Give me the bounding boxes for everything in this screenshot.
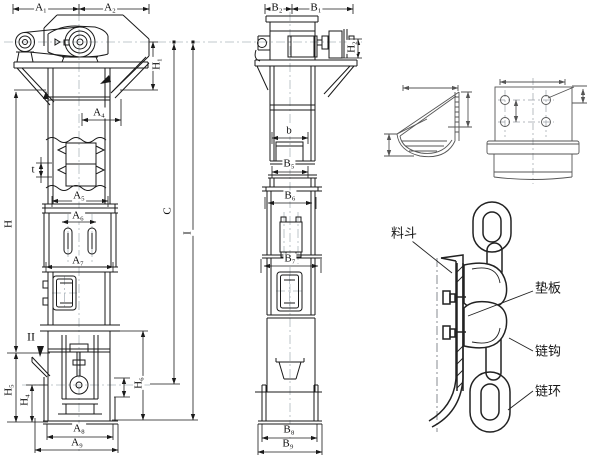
dim-label-t: t xyxy=(30,165,35,176)
dim-label-b6: B₆ xyxy=(283,191,296,202)
bucket-detail-linework xyxy=(384,78,587,184)
dim-label-h6: H₆ xyxy=(134,376,145,390)
side-view-linework xyxy=(255,16,357,424)
chain-detail-pad-plate-label: 垫板 xyxy=(534,278,562,297)
dim-label-c: C xyxy=(163,206,174,215)
dim-label-b9: B₉ xyxy=(281,439,294,450)
dim-label-b2: B₂ xyxy=(270,3,283,14)
dim-label-b1: B₁ xyxy=(309,3,322,14)
dim-label-a7: A₇ xyxy=(71,256,85,267)
dim-label-a2: A₂ xyxy=(103,3,117,14)
chain-detail-chain-hook-label: 链钩 xyxy=(534,341,562,360)
dim-label-h1: H₁ xyxy=(152,57,163,71)
dim-label-h5: H₅ xyxy=(4,383,15,397)
dim-label-a4: A₄ xyxy=(92,108,106,119)
dim-label-b: b xyxy=(285,126,293,137)
section-mark-label: II xyxy=(26,330,36,345)
dim-label-i: I xyxy=(183,230,194,236)
dim-label-a1: A₁ xyxy=(34,3,48,14)
chain-detail-chain-link-label: 链环 xyxy=(534,381,562,400)
dim-label-h4: H₄ xyxy=(20,393,31,407)
dim-label-h2: H₂ xyxy=(347,40,358,54)
drawing-canvas xyxy=(0,0,600,456)
dim-label-a9: A₉ xyxy=(70,438,84,449)
chain-detail-linework xyxy=(412,202,533,432)
front-view-dimensions xyxy=(7,4,198,453)
section-cut-arrow-boot xyxy=(37,346,44,357)
dim-label-a8: A₈ xyxy=(72,424,86,435)
dim-label-h: H xyxy=(4,219,15,229)
dim-label-a5: A₅ xyxy=(72,191,86,202)
chain-detail-bucket-label: 料斗 xyxy=(390,223,418,242)
dim-label-b7: B₇ xyxy=(283,254,296,265)
elevator-drawing: A₁ A₂ H₁ A₄ t A₅ A₆ A₇ II H H₅ H₄ H₆ A₈ … xyxy=(0,0,600,456)
dim-label-b5: B₅ xyxy=(282,159,295,170)
dim-label-b8: B₈ xyxy=(282,425,295,436)
dim-label-a6: A₆ xyxy=(71,211,85,222)
